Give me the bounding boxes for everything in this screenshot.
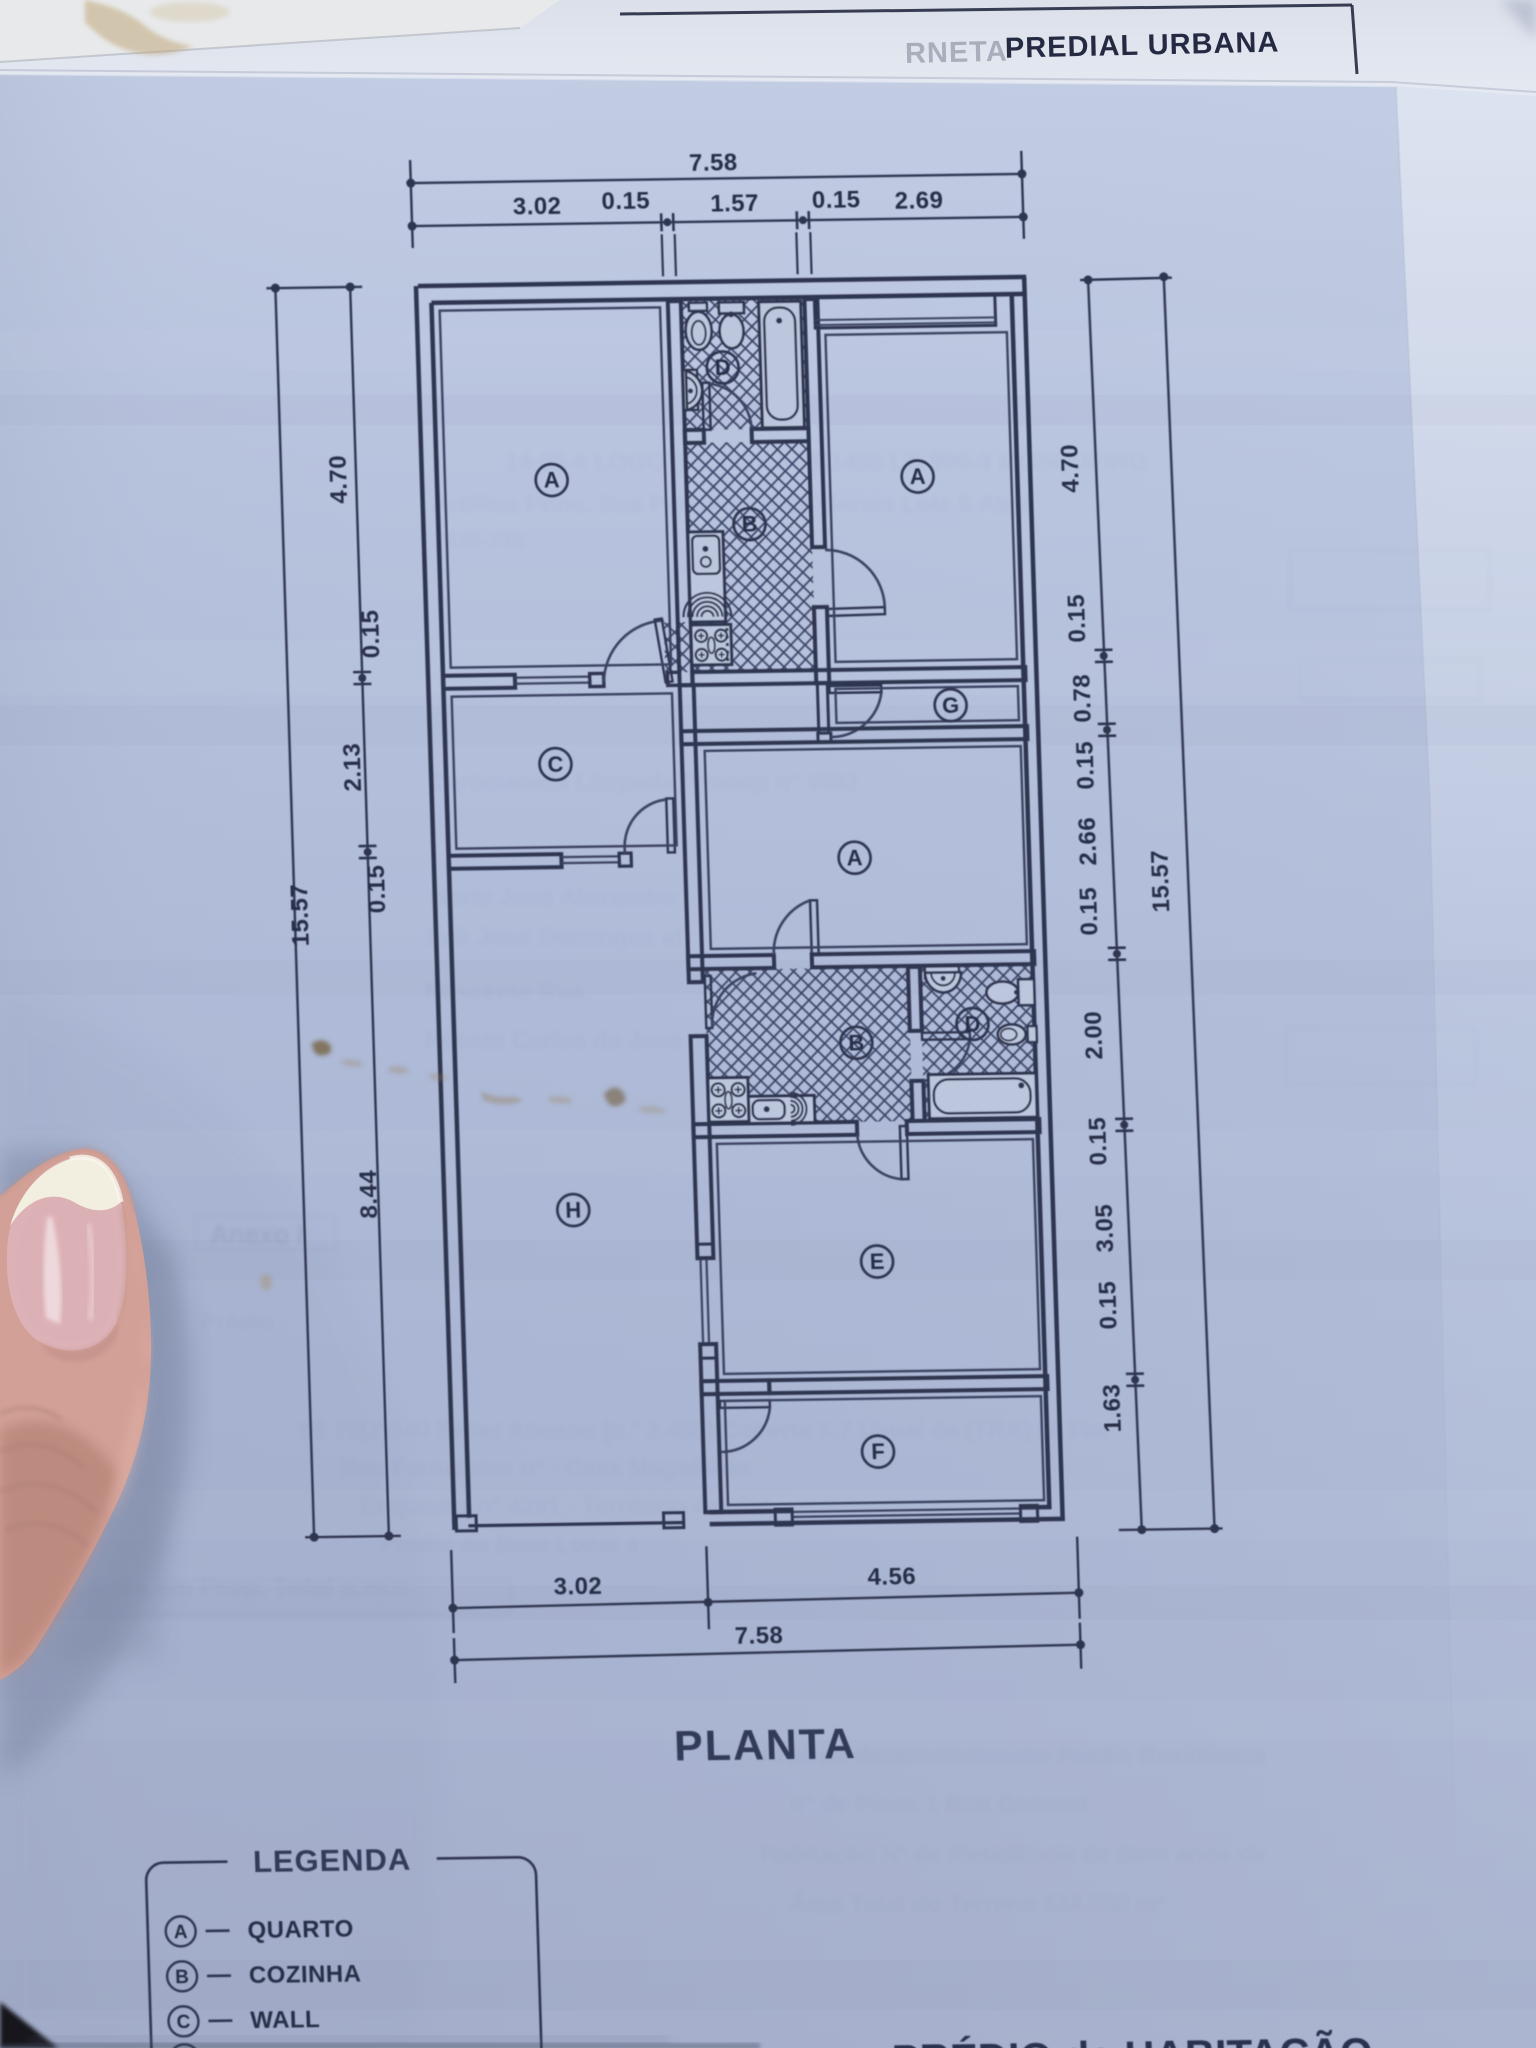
svg-text:A: A (846, 845, 863, 870)
svg-text:15.57: 15.57 (1147, 850, 1176, 913)
svg-text:7.58: 7.58 (689, 149, 738, 177)
svg-text:14-05-6 LOGO (5A T5) Ab 05/1: 14-05-6 LOGO (5A T5) Ab 05/1455 LO 900-3… (505, 449, 1147, 476)
svg-text:8.44: 8.44 (355, 1169, 383, 1218)
svg-text:RNETA: RNETA (905, 36, 1008, 70)
svg-text:G: G (942, 693, 960, 718)
svg-text:A: A (174, 1922, 189, 1943)
svg-text:Área Total do Terreno 534: Área Total do Terreno 534.000 m² (790, 1890, 1165, 1918)
svg-text:C: C (547, 752, 564, 777)
svg-text:PREDIAL URBANA: PREDIAL URBANA (1005, 26, 1280, 64)
svg-text:3.02: 3.02 (553, 1573, 602, 1601)
svg-text:1.57: 1.57 (710, 190, 759, 218)
svg-text:B: B (175, 1967, 189, 1988)
svg-text:0.15: 0.15 (357, 609, 385, 658)
svg-text:Habitação Nº de Residência: Habitação Nº de Residência de Bem anos d… (760, 1841, 1266, 1868)
svg-text:B: B (848, 1030, 865, 1055)
svg-text:0.15: 0.15 (1075, 887, 1103, 936)
svg-text:WALL: WALL (250, 2006, 321, 2034)
svg-text:QUARTO: QUARTO (247, 1916, 354, 1945)
svg-text:Prédio: Prédio (200, 1309, 275, 1336)
svg-text:0.15: 0.15 (363, 864, 391, 913)
svg-text:Norte José Alexandre: Norte José Alexandre (430, 884, 676, 911)
svg-text:4.70: 4.70 (324, 455, 352, 504)
svg-text:2.69: 2.69 (894, 187, 943, 215)
svg-text:0.15: 0.15 (601, 187, 650, 215)
svg-text:0.15: 0.15 (1094, 1281, 1122, 1330)
svg-text:2.13: 2.13 (338, 743, 366, 792)
svg-text:0.15: 0.15 (812, 186, 861, 214)
svg-text:Rua Fernandes nº - Casa Ma: Rua Fernandes nº - Casa Magalhães (340, 1455, 752, 1482)
svg-text:nº de Pisos 1: nº de Pisos 1 Rua General (790, 1791, 1087, 1818)
svg-text:2.00: 2.00 (1080, 1011, 1108, 1060)
svg-text:7.58: 7.58 (734, 1622, 783, 1650)
svg-text:E: E (869, 1249, 884, 1274)
svg-text:LEGENDA: LEGENDA (253, 1842, 412, 1879)
svg-text:4.56: 4.56 (867, 1563, 916, 1591)
svg-text:3.05: 3.05 (1091, 1204, 1119, 1253)
svg-text:0.15: 0.15 (1084, 1117, 1112, 1166)
svg-text:1.63: 1.63 (1098, 1384, 1126, 1433)
svg-text:Sul: José Domingos al: Sul: José Domingos al (425, 924, 682, 951)
svg-text:PLANTA: PLANTA (673, 1720, 857, 1771)
svg-text:C: C (176, 2012, 191, 2033)
svg-text:Cartesanato Limpada Prossip: Cartesanato Limpada Prossip nº 4582 (430, 769, 859, 796)
svg-text:D: D (964, 1011, 981, 1036)
svg-text:2.66: 2.66 (1074, 817, 1102, 866)
svg-text:A: A (909, 464, 926, 489)
svg-text:0.15: 0.15 (1063, 594, 1091, 643)
svg-text:COZINHA: COZINHA (248, 1961, 361, 1990)
svg-text:A: A (543, 467, 560, 492)
svg-text:15.57: 15.57 (286, 884, 315, 947)
svg-text:4.70: 4.70 (1056, 444, 1084, 493)
svg-text:0.15: 0.15 (1071, 741, 1099, 790)
svg-text:H: H (565, 1197, 582, 1222)
svg-text:0.78: 0.78 (1068, 674, 1096, 723)
svg-text:F: F (871, 1439, 885, 1464)
svg-text:3.02: 3.02 (512, 193, 561, 221)
svg-text:B: B (741, 511, 758, 536)
svg-text:Poente Carlos da José: Poente Carlos da José (425, 1027, 682, 1054)
svg-text:D: D (714, 355, 731, 380)
